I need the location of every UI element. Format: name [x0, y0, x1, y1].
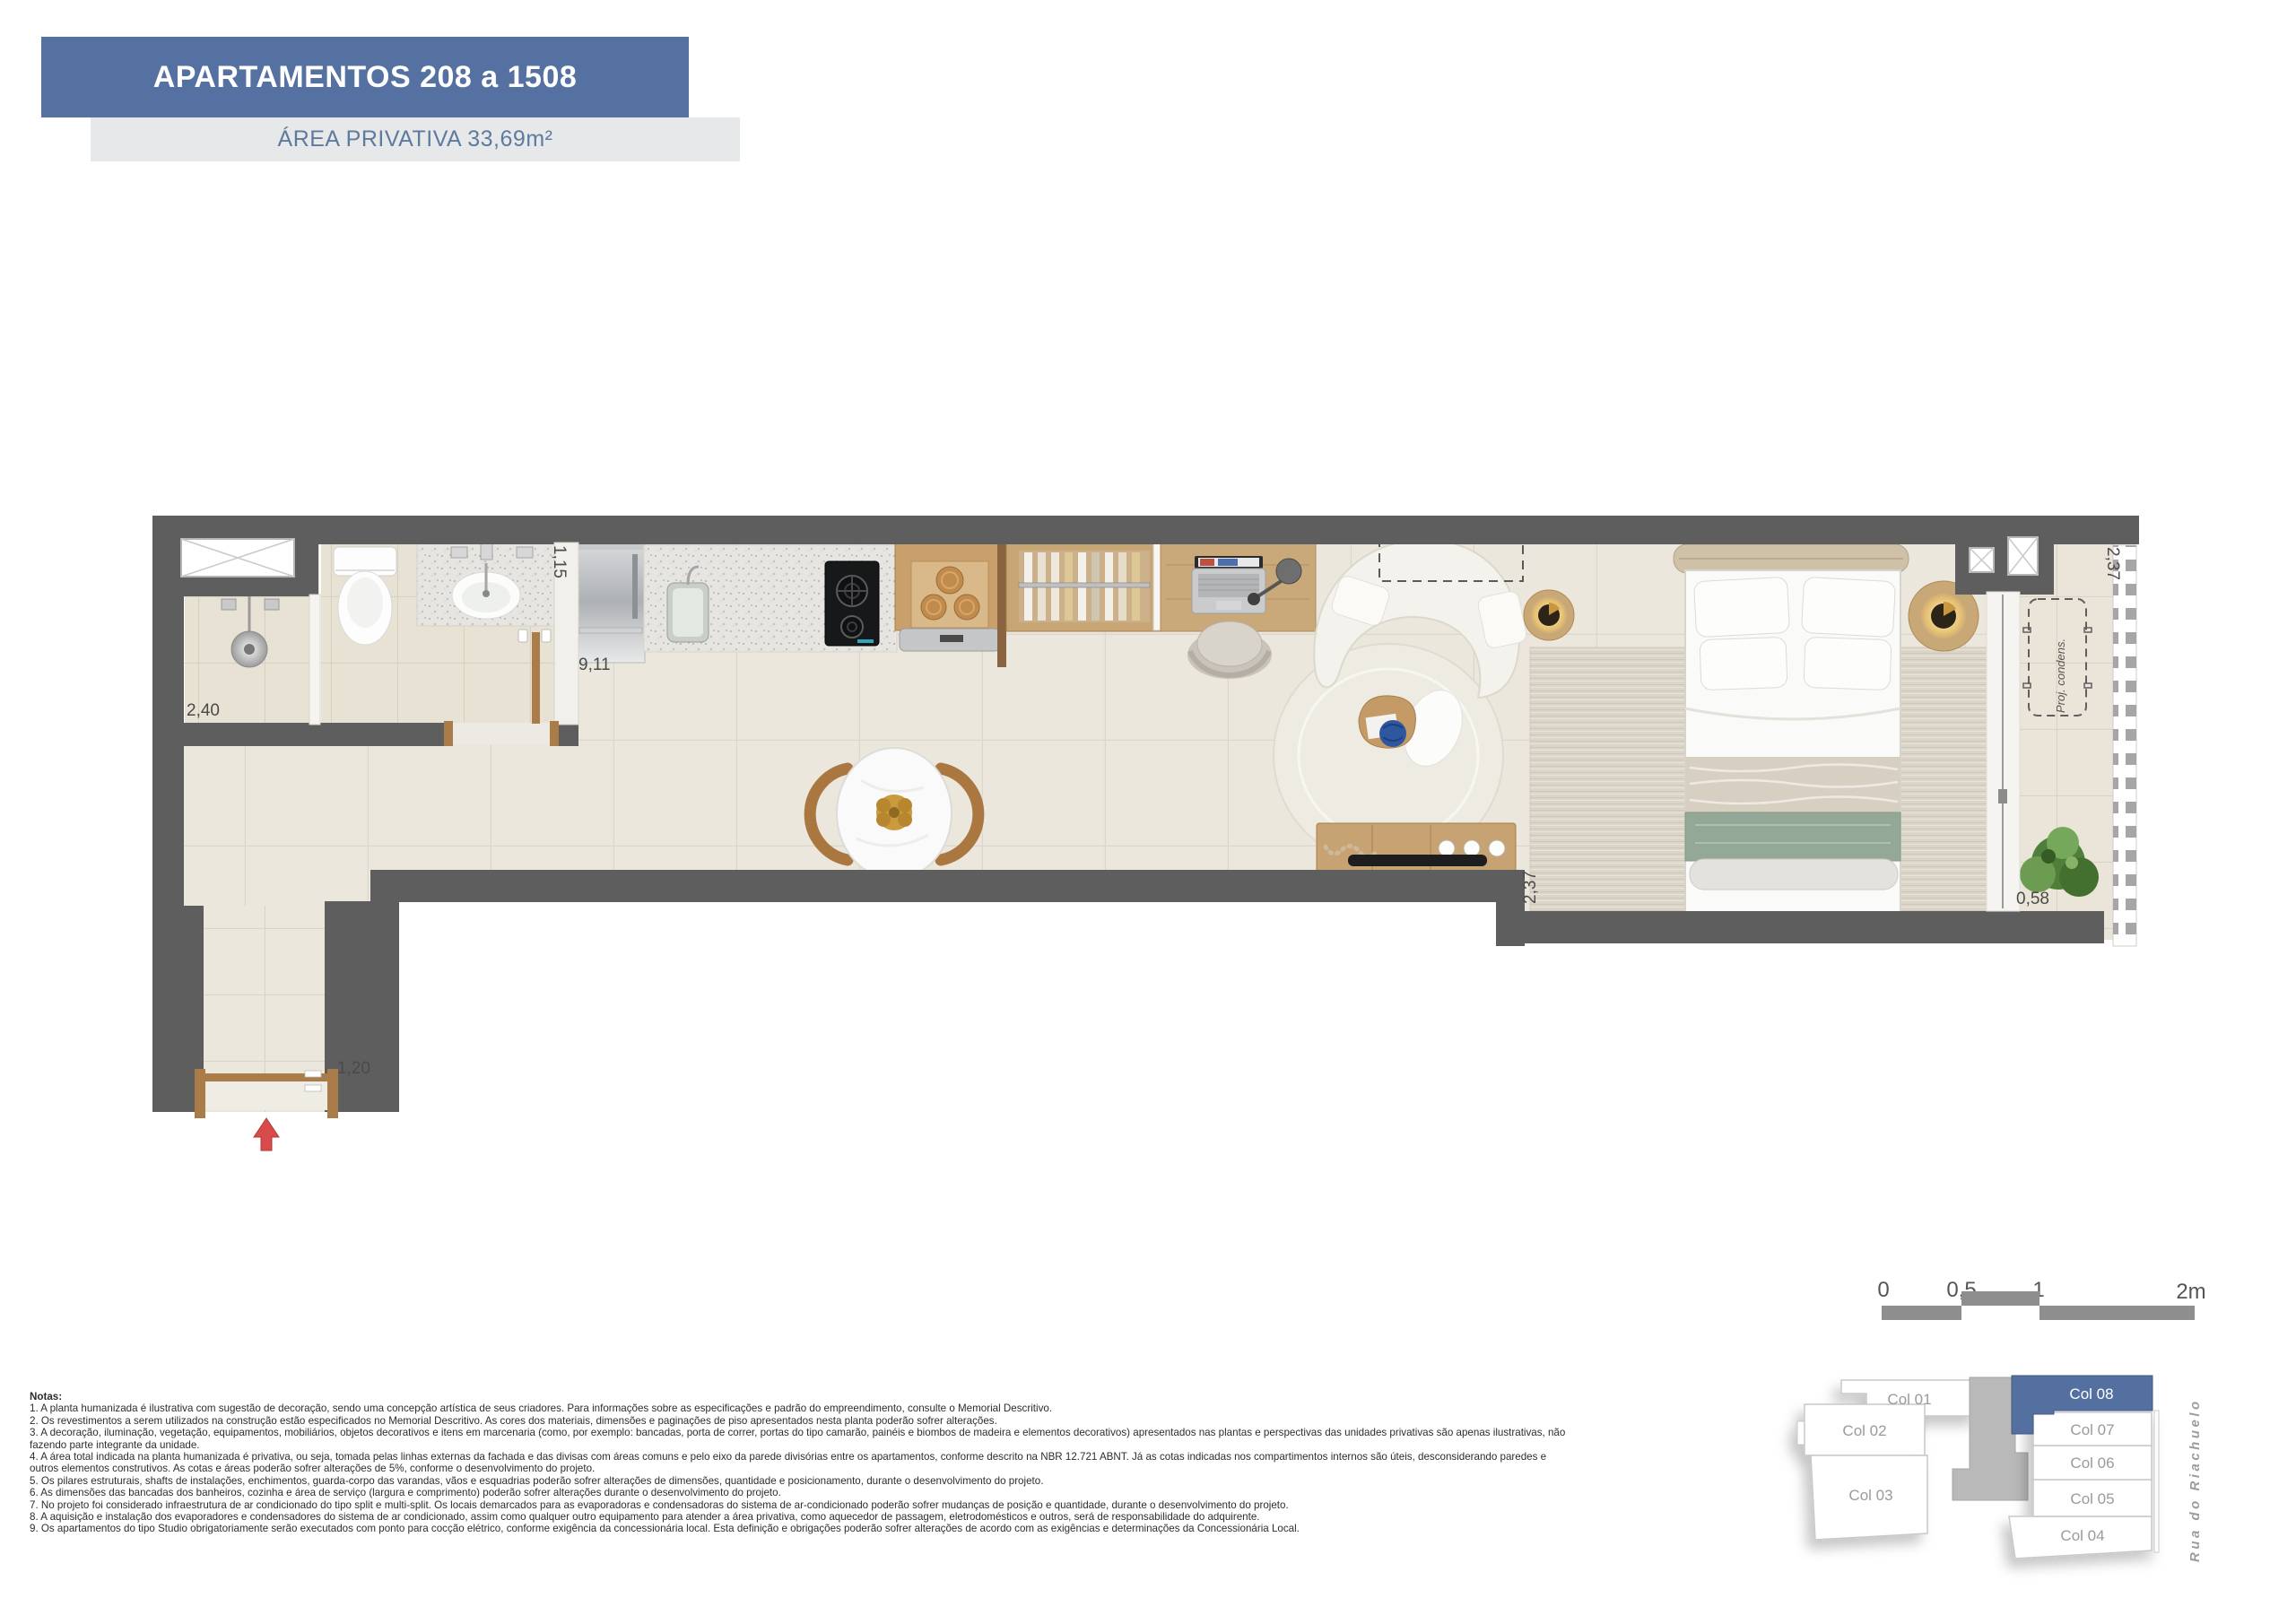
note-item: 6. As dimensões das bancadas dos banheir…: [30, 1487, 1575, 1498]
condenser-label: Proj. condens.: [2054, 638, 2067, 713]
dim-bedroom-depth: 2,37: [1521, 871, 1540, 904]
scale-tick-2m: 2m: [2176, 1280, 2205, 1304]
plates-cabinet: [895, 541, 1003, 651]
nightstand-left: [1524, 590, 1574, 640]
desk: [1161, 542, 1316, 631]
toilet: [334, 547, 396, 645]
keyplan-label-col02[interactable]: Col 02: [1842, 1422, 1886, 1439]
note-item: 4. A área total indicada na planta human…: [30, 1451, 1575, 1475]
keyplan-label-col03[interactable]: Col 03: [1848, 1487, 1892, 1504]
fridge: [577, 541, 645, 663]
floor-plan: 2,40 1,15 9,11 2,37 2,37 0,58 1,20 Proj.…: [0, 0, 2296, 1624]
note-item: 8. A aquisição e instalação dos evaporad…: [30, 1511, 1575, 1523]
dim-entry: 1,20: [337, 1059, 370, 1078]
dim-balcony-width: 0,58: [2016, 890, 2049, 908]
key-plan: Col 01 Col 02 Col 03 Col 04 Col 05 Col 0…: [1797, 1376, 2203, 1562]
dim-kitchen-run: 9,11: [578, 656, 611, 674]
street-label: Rua do Riachuelo: [2187, 1398, 2203, 1562]
cooktop: [825, 561, 879, 646]
keyplan-label-col05[interactable]: Col 05: [2070, 1490, 2114, 1507]
scale-tick-0: 0: [1877, 1278, 1889, 1302]
wood-divider: [997, 542, 1006, 667]
note-item: 9. Os apartamentos do tipo Studio obriga…: [30, 1523, 1575, 1534]
notes-section: Notas: 1. A planta humanizada é ilustrat…: [30, 1391, 1575, 1535]
notes-title: Notas:: [30, 1391, 1575, 1403]
note-item: 1. A planta humanizada é ilustrativa com…: [30, 1403, 1575, 1414]
keyplan-label-col01[interactable]: Col 01: [1887, 1391, 1931, 1408]
entrance-arrow-icon: [254, 1118, 279, 1151]
dim-balcony-depth: 2,37: [2103, 547, 2122, 580]
keyplan-label-col08[interactable]: Col 08: [2069, 1385, 2113, 1403]
tv-console: [1317, 823, 1516, 874]
dim-bath-counter: 1,15: [550, 545, 569, 578]
note-item: 3. A decoração, iluminação, vegetação, e…: [30, 1427, 1575, 1451]
bathroom-sink: [417, 542, 556, 626]
wardrobe: [1006, 542, 1164, 631]
note-item: 5. Os pilares estruturais, shafts de ins…: [30, 1475, 1575, 1487]
keyplan-label-col04[interactable]: Col 04: [2060, 1527, 2104, 1544]
dim-shower: 2,40: [187, 701, 220, 720]
keyplan-label-col06[interactable]: Col 06: [2070, 1455, 2114, 1472]
note-item: 7. No projeto foi considerado infraestru…: [30, 1499, 1575, 1511]
note-item: 2. Os revestimentos a serem utilizados n…: [30, 1415, 1575, 1427]
scale-bar: 0 0,5 1 2m: [1877, 1278, 2205, 1320]
floor-plan-page: APARTAMENTOS 208 a 1508 ÁREA PRIVATIVA 3…: [0, 0, 2296, 1624]
bed: [1674, 544, 1909, 929]
keyplan-label-col07[interactable]: Col 07: [2070, 1421, 2114, 1438]
